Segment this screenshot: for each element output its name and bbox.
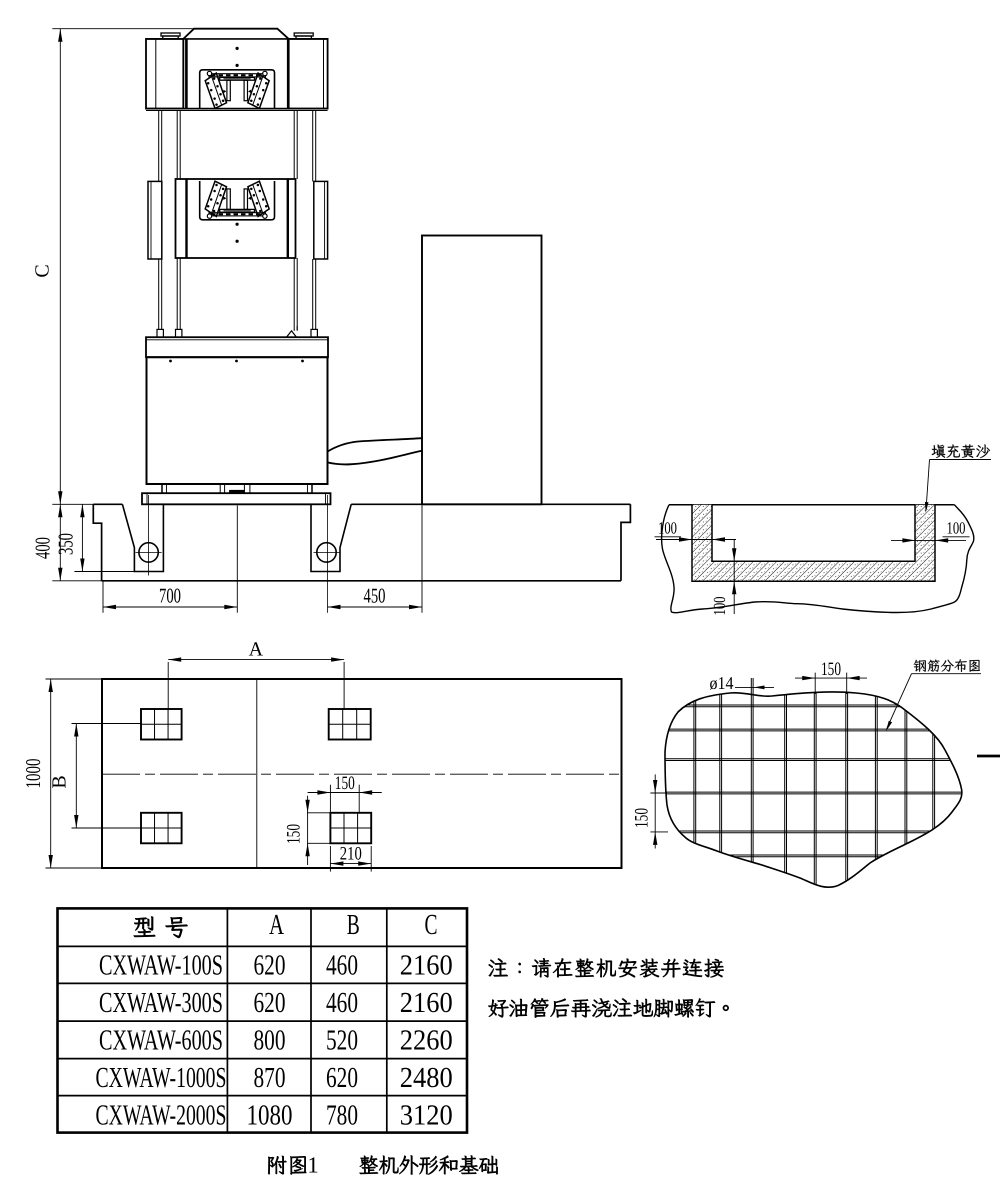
svg-text:520: 520 — [326, 1024, 358, 1056]
svg-text:620: 620 — [254, 949, 286, 981]
svg-text:450: 450 — [364, 584, 386, 608]
svg-text:150: 150 — [821, 659, 841, 680]
svg-text:3120: 3120 — [400, 1099, 453, 1131]
svg-text:100: 100 — [947, 519, 966, 538]
svg-text:B: B — [49, 775, 71, 788]
svg-text:C: C — [425, 909, 438, 941]
svg-text:460: 460 — [326, 949, 358, 981]
svg-text:2480: 2480 — [400, 1062, 453, 1094]
svg-text:400: 400 — [31, 537, 55, 559]
svg-text:A: A — [249, 639, 264, 661]
svg-text:A: A — [269, 909, 284, 941]
svg-text:1: 1 — [307, 1153, 319, 1178]
svg-text:150: 150 — [632, 808, 653, 828]
svg-text:800: 800 — [254, 1024, 286, 1056]
svg-text:150: 150 — [335, 773, 355, 794]
svg-text:100: 100 — [710, 597, 729, 616]
svg-text:CXWAW-1000S: CXWAW-1000S — [96, 1062, 227, 1094]
svg-text:B: B — [347, 909, 360, 941]
svg-text:780: 780 — [326, 1099, 358, 1131]
svg-text:1080: 1080 — [247, 1099, 293, 1131]
svg-text:C: C — [32, 264, 54, 277]
svg-text:CXWAW-100S: CXWAW-100S — [99, 949, 223, 981]
svg-text:1000: 1000 — [21, 759, 45, 789]
svg-text:210: 210 — [340, 844, 362, 865]
svg-text:ø14: ø14 — [710, 673, 734, 693]
svg-text:CXWAW-300S: CXWAW-300S — [99, 987, 223, 1019]
svg-text:620: 620 — [254, 987, 286, 1019]
svg-text:CXWAW-2000S: CXWAW-2000S — [96, 1099, 227, 1131]
svg-text:350: 350 — [54, 533, 78, 555]
svg-text:870: 870 — [254, 1062, 286, 1094]
svg-text:620: 620 — [326, 1062, 358, 1094]
svg-text:460: 460 — [326, 987, 358, 1019]
svg-text:2160: 2160 — [400, 987, 453, 1019]
svg-text:CXWAW-600S: CXWAW-600S — [99, 1024, 223, 1056]
svg-text:150: 150 — [284, 824, 305, 844]
svg-text:100: 100 — [658, 519, 677, 538]
svg-text:2160: 2160 — [400, 949, 453, 981]
svg-text:700: 700 — [159, 584, 181, 608]
svg-text:2260: 2260 — [400, 1024, 453, 1056]
